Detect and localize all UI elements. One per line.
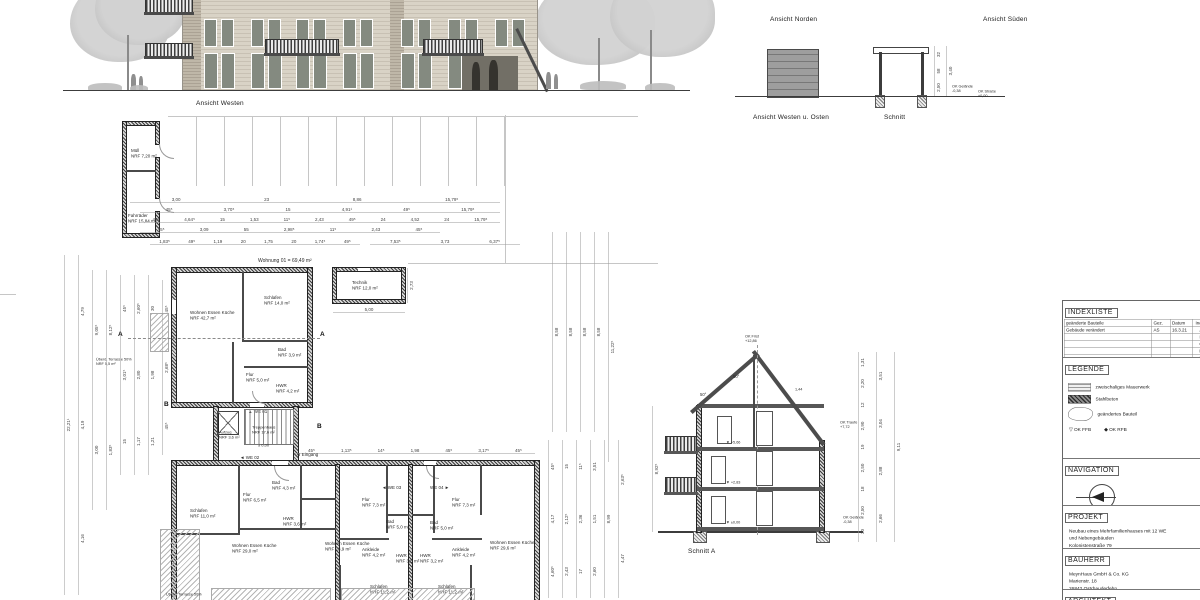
- table-row: geänderte BauteileGez.DatumIndex: [1064, 319, 1200, 326]
- dim-value: 2,90: [860, 422, 865, 431]
- level-label: OK First +12,86: [745, 334, 759, 343]
- datum-ok-rfb: ◆ OK RFB: [1104, 427, 1127, 433]
- shape-slab2: [697, 404, 824, 408]
- architekt-section: ARCHITEKT: [1063, 590, 1200, 600]
- ground-line: [658, 531, 863, 533]
- balcony-railing: [666, 478, 696, 492]
- shape-iw: [757, 412, 772, 445]
- bauherr-section: BAUHERR MeynHaus GmbH & Co. KG Marienstr…: [1063, 549, 1200, 590]
- dim: 1,44: [795, 387, 802, 392]
- legend-item: geändertes Bauteil: [1068, 407, 1200, 421]
- roof-pitch: 50°: [700, 392, 706, 397]
- shape-vchain: 1,312,20122,90192,50182,5030: [858, 352, 867, 542]
- roof-pitch: 50°: [733, 374, 739, 379]
- section-a-drawing: OK First +12,8650°50°1,44OK Traufe +7,72…: [0, 0, 1200, 600]
- shape-slab2: [697, 527, 824, 531]
- dim-value: 2,20: [860, 379, 865, 388]
- level-label: ▼ ±0,00: [726, 520, 740, 525]
- dim-value: 2,66: [878, 514, 883, 523]
- compass-needle-icon: [1092, 492, 1104, 502]
- drawing-title-schnitt-a: Schnitt A: [688, 548, 715, 555]
- dim-value: 18: [860, 487, 865, 492]
- level-label: ▼ +5,66: [726, 440, 740, 445]
- dim-value: 2,50: [860, 506, 865, 515]
- shape-slab2: [697, 447, 824, 451]
- sw1-swatch-icon: [1068, 383, 1091, 392]
- shape-iw: [757, 452, 772, 485]
- balcony-slab: [664, 451, 698, 454]
- legend-item: zweischaliges Mauerwerk: [1068, 383, 1200, 392]
- shape-twall: [753, 355, 755, 448]
- cloud-swatch-icon: [1068, 407, 1093, 421]
- shape-wall: [697, 406, 701, 532]
- balcony-slab: [664, 492, 698, 495]
- shape-iw: [712, 497, 725, 523]
- dim-value: 30: [860, 529, 865, 534]
- level-label: OK Traufe +7,72: [840, 420, 857, 429]
- navigation-section: NAVIGATION: [1063, 459, 1200, 506]
- projekt-text: Neubau eines Mehrfamilienhauses mit 12 W…: [1069, 528, 1200, 549]
- legend-label: Stahlbeton: [1096, 397, 1119, 403]
- dim-value: 19: [860, 444, 865, 449]
- dim-value: 12: [860, 402, 865, 407]
- indexliste-header: INDEXLISTE: [1065, 308, 1118, 318]
- shape-foot: [694, 532, 706, 542]
- table-row: D: [1064, 347, 1200, 354]
- dim-value: 3,51: [878, 371, 883, 380]
- title-block: INDEXLISTE geänderte BauteileGez.DatumIn…: [1062, 300, 1200, 600]
- navigation-header: NAVIGATION: [1065, 466, 1119, 476]
- legend-label: geändertes Bauteil: [1098, 411, 1138, 417]
- level-label: ▼ +2,83: [726, 480, 740, 485]
- dim-value: 3,04: [878, 419, 883, 428]
- balcony-railing: [666, 437, 696, 451]
- legend-item: Stahlbeton: [1068, 395, 1200, 404]
- indexliste-table: geänderte BauteileGez.DatumIndexGebäude …: [1064, 319, 1200, 358]
- dim-value: 2,50: [860, 464, 865, 473]
- bauherr-header: BAUHERR: [1065, 556, 1110, 566]
- shape-iw: [757, 492, 772, 525]
- dim-value: 1,31: [860, 358, 865, 367]
- legende-section: LEGENDE zweischaliges MauerwerkStahlbeto…: [1063, 358, 1200, 459]
- indexliste-section: INDEXLISTE geänderte BauteileGez.DatumIn…: [1063, 301, 1200, 358]
- indexliste-table: geänderte BauteileGez.DatumIndexGebäude …: [1063, 319, 1200, 358]
- dim-value: 8,92⁵: [654, 464, 659, 475]
- legend-label: zweischaliges Mauerwerk: [1096, 385, 1150, 391]
- shape-iw: [712, 457, 725, 483]
- legende-header: LEGENDE: [1065, 365, 1109, 375]
- architectural-drawing-sheet: Ansicht Westen Ansicht NordenAnsicht Süd…: [0, 0, 1200, 600]
- datum-symbols: ▽ OK FFB ◆ OK RFB: [1069, 427, 1200, 433]
- datum-ok-ffb: ▽ OK FFB: [1069, 427, 1091, 433]
- legende-items: zweischaliges MauerwerkStahlbetongeänder…: [1063, 383, 1200, 433]
- table-row: B: [1064, 333, 1200, 340]
- shape-slab2: [697, 487, 824, 491]
- north-compass-icon: [1089, 484, 1115, 506]
- shape-foot: [817, 532, 829, 542]
- dim-value: 9,11: [896, 443, 901, 451]
- table-row: Gebäude verändertAS16.3.21A: [1064, 326, 1200, 333]
- shape-vchain: 9,11: [894, 352, 903, 542]
- shape-vchain: 3,513,042,882,66: [876, 352, 885, 542]
- shape-vchain: 8,92⁵: [652, 406, 661, 532]
- dim-value: 2,88: [878, 466, 883, 475]
- projekt-section: PROJEKT Neubau eines Mehrfamilienhauses …: [1063, 506, 1200, 549]
- bauherr-text: MeynHaus GmbH & Co. KG Marienstr. 18 268…: [1069, 571, 1200, 590]
- projekt-header: PROJEKT: [1065, 513, 1108, 523]
- table-row: C: [1064, 340, 1200, 347]
- sw2-swatch-icon: [1068, 395, 1091, 404]
